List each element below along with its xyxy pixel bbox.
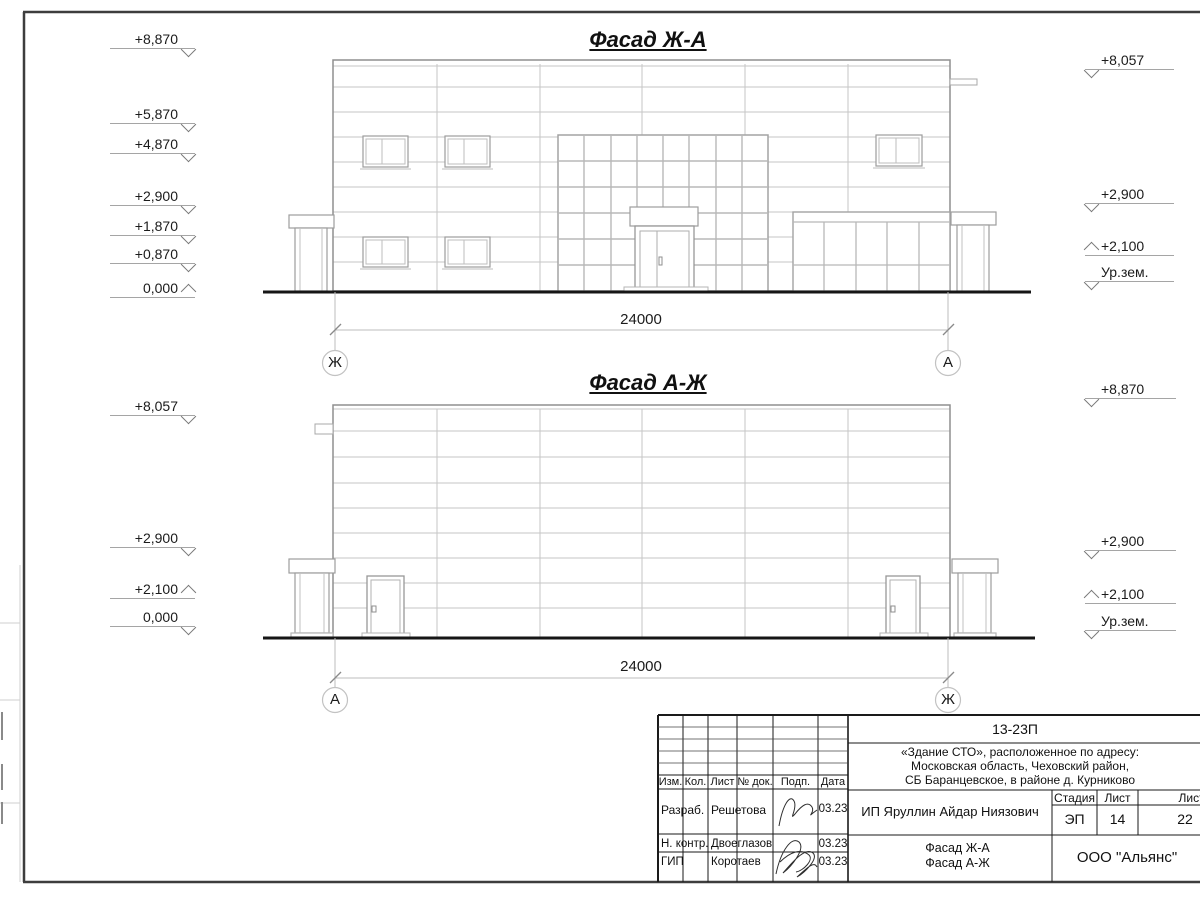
elevation-value: Ур.зем. [1101, 264, 1149, 280]
doc-number: 13-23П [860, 721, 1170, 737]
elevation-value: +2,100 [1101, 238, 1144, 254]
project-address-line1: «Здание СТО», расположенное по адресу: [855, 745, 1185, 759]
row-date: 03.23 [818, 838, 848, 850]
signature-scribbles [776, 799, 817, 877]
sheet-header: Лист [1097, 791, 1138, 805]
company-name: ООО "Альянс" [1054, 849, 1200, 866]
row-name: Коротаев [711, 856, 761, 868]
row-role: ГИП [661, 856, 684, 868]
elevation-mark: +2,900 [110, 530, 195, 548]
facade2-dimension-label: 24000 [571, 658, 711, 675]
elevation-mark: +2,100 [110, 581, 195, 599]
elevation-mark: +0,870 [110, 246, 195, 264]
facade2-dimension [323, 638, 961, 713]
elevation-value: +8,057 [135, 398, 178, 414]
elevation-value: +2,100 [135, 581, 178, 597]
entrance-sign-board [630, 207, 698, 226]
stage-header: Стадия [1052, 791, 1097, 805]
elevation-value: +8,870 [1101, 381, 1144, 397]
col-header-kol: Кол. [683, 776, 708, 788]
elevation-value: +5,870 [135, 106, 178, 122]
elevation-value: +2,900 [135, 188, 178, 204]
facade1-right-glazing [793, 212, 950, 291]
row-date: 03.23 [818, 856, 848, 868]
drawing-name-line2: Фасад А-Ж [870, 856, 1045, 870]
elevation-value: Ур.зем. [1101, 613, 1149, 629]
elevation-mark: +2,100 [1085, 586, 1176, 604]
col-header-podp: Подп. [773, 776, 818, 788]
elevation-value: +8,057 [1101, 52, 1144, 68]
facade1-drawing [263, 60, 1031, 376]
facade2-roof-protrusion [315, 424, 333, 434]
elevation-value: 0,000 [143, 609, 178, 625]
facade1-title: Фасад Ж-А [553, 27, 743, 53]
facade1-roof-protrusion [950, 79, 977, 85]
row-name: Решетова [711, 803, 766, 817]
row-date: 03.23 [818, 803, 848, 815]
row-name: Двоеглазов [711, 838, 772, 850]
elevation-mark: +8,057 [1085, 52, 1174, 70]
facade1-left-porch [289, 215, 334, 291]
elevation-mark: +8,870 [110, 31, 195, 49]
axis-label-f1-left: Ж [322, 350, 348, 376]
project-address-line2: Московская область, Чеховский район, [855, 759, 1185, 773]
elevation-mark: +4,870 [110, 136, 195, 154]
elevation-mark: +2,900 [110, 188, 195, 206]
elevation-mark: +5,870 [110, 106, 195, 124]
drawing-sheet: Фасад Ж-А Фасад А-Ж 24000 24000 Ж А А Ж … [0, 0, 1200, 900]
facade2-panel-joints [333, 409, 950, 637]
axis-label-f1-right: А [935, 350, 961, 376]
facade1-right-porch [951, 212, 996, 291]
col-header-izm: Изм. [658, 776, 683, 788]
sheets-header: Листов [1158, 791, 1200, 805]
sheet-number: 14 [1097, 811, 1138, 827]
facade2-title: Фасад А-Ж [553, 370, 743, 396]
axis-label-f2-left: А [322, 687, 348, 713]
elevation-value: +2,900 [135, 530, 178, 546]
elevation-value: +0,870 [135, 246, 178, 262]
elevation-value: +8,870 [135, 31, 178, 47]
elevation-mark: +8,870 [1085, 381, 1176, 399]
col-header-doc: № док. [737, 776, 773, 788]
elevation-mark: +2,100 [1085, 238, 1174, 256]
project-address-line3: СБ Баранцевское, в районе д. Курниково [855, 773, 1185, 787]
drawing-name-line1: Фасад Ж-А [870, 841, 1045, 855]
facade2-left-porch [289, 559, 335, 637]
elevation-mark: Ур.зем. [1085, 264, 1174, 282]
row-role: Н. контр. [661, 838, 708, 850]
elevation-value: +4,870 [135, 136, 178, 152]
elevation-value: +2,900 [1101, 186, 1144, 202]
elevation-value: +1,870 [135, 218, 178, 234]
elevation-mark: +1,870 [110, 218, 195, 236]
elevation-mark: Ур.зем. [1085, 613, 1176, 631]
elevation-mark: 0,000 [110, 280, 195, 298]
facade1-curtain-wall [558, 135, 768, 292]
facade1-dimension [323, 292, 961, 376]
client-name: ИП Яруллин Айдар Ниязович [850, 804, 1050, 819]
facade2-left-door [362, 576, 410, 637]
elevation-mark: +2,900 [1085, 533, 1176, 551]
elevation-mark: 0,000 [110, 609, 195, 627]
facade2-right-porch [952, 559, 998, 637]
axis-label-f2-right: Ж [935, 687, 961, 713]
stage-value: ЭП [1052, 811, 1097, 827]
facade2-right-door [880, 576, 928, 637]
elevation-value: +2,900 [1101, 533, 1144, 549]
elevation-value: 0,000 [143, 280, 178, 296]
facade1-dimension-label: 24000 [571, 311, 711, 328]
col-header-data: Дата [818, 776, 848, 788]
sheets-total: 22 [1160, 811, 1200, 827]
row-role: Разраб. [661, 803, 704, 817]
elevation-mark: +8,057 [110, 398, 195, 416]
elevation-value: +2,100 [1101, 586, 1144, 602]
col-header-list: Лист [708, 776, 737, 788]
elevation-mark: +2,900 [1085, 186, 1174, 204]
